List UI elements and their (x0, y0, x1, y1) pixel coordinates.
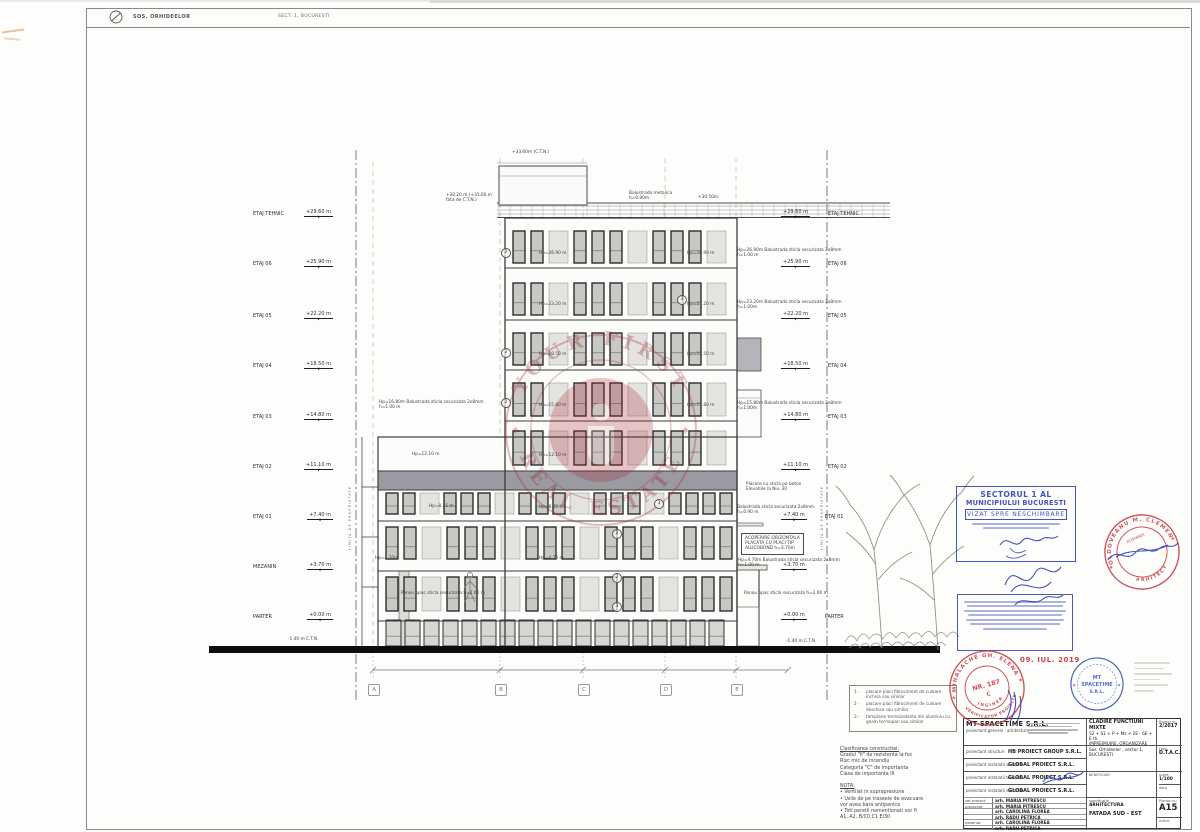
floor-label: ETAJ 05 (253, 313, 304, 319)
drawing-annotation: Hp=4.70m (375, 556, 398, 561)
project-subtitle: S2 + S1 + P + Mz + 2E - 6E + E th. (1089, 731, 1154, 741)
floor-level-right: +25.90 mETAJ 06 (781, 259, 901, 267)
consultant-row: proiectant instalatii sanitareGLOBAL PRO… (964, 758, 1086, 771)
floor-level-left: ETAJ 02+11.10 m (253, 462, 333, 470)
spec-value: ARHITECTURA (1089, 803, 1154, 808)
floor-label: ETAJ 03 (253, 414, 304, 420)
axis-bubble-C: C (578, 684, 590, 696)
drawing-annotation: -1.40 m C.T.N. (288, 637, 318, 642)
floor-level-left: MEZANIN+3.70 m (253, 562, 333, 570)
consultant-row: proiectant structuriHB PROIECT GROUP S.R… (964, 745, 1086, 758)
drawing-annotation: Hp=4.70 m (539, 556, 564, 561)
drawing-annotation: Hp=16.80m Balustrada sticla securizata 2… (379, 400, 484, 410)
axis-bubble-E: E (731, 684, 743, 696)
drawing-title: FATADA SUD - EST (1089, 811, 1154, 817)
drawing-annotation: Placare cu sticla pe beton Elevatiile la… (746, 482, 801, 492)
annotation-layer: ETAJ TEHNIC+29.60 mETAJ 06+25.90 mETAJ 0… (0, 0, 1200, 832)
drawing-annotation: Hp=23.20m Balustrada sticla securizata 2… (737, 300, 842, 310)
indice-label: indice (1159, 819, 1180, 823)
floor-elevation: +0.00 m (307, 612, 333, 620)
floor-elevation: +25.90 m (781, 259, 810, 267)
stamp-line: MUNICIPIULUI BUCURESTI (959, 499, 1073, 507)
data-label: data (1159, 784, 1180, 790)
drawing-annotation: Hp=8.45 m (429, 504, 454, 509)
floor-elevation: +22.20 m (781, 311, 810, 319)
drawing-annotation: Balustrada metalica h=0.90m (629, 191, 672, 201)
floor-label: ETAJ 01 (825, 514, 844, 520)
material-number-bubble: 2 (612, 529, 622, 539)
company-address-lines (1028, 721, 1082, 736)
project-title: CLADIRE FUNCTIUNI MIXTE (1089, 720, 1154, 731)
floor-level-left: ETAJ TEHNIC+29.60 m (253, 209, 333, 217)
drawing-annotation: Balustrada sticla securizata 2x8mm h=0.9… (737, 505, 814, 515)
drawing-annotation: Hp=23.20 m (539, 302, 566, 307)
floor-label: ETAJ 06 (828, 261, 847, 267)
consultant-row: proiectant instalatii electriceGLOBAL PR… (964, 784, 1086, 797)
floor-level-left: ETAJ 04+18.50 m (253, 361, 333, 369)
drawing-annotation: -1.40 m C.T.N. (786, 639, 816, 644)
floor-level-left: ETAJ 03+14.80 m (253, 412, 333, 420)
floor-level-left: ETAJ 06+25.90 m (253, 259, 333, 267)
floor-level-right: +0.00 mPARTER (781, 612, 901, 620)
material-number-bubble: 2 (501, 248, 511, 258)
drawing-annotation: Hp=12.10 m (412, 452, 439, 457)
legend-item: 2 -placare placi fibrociment de culoare … (854, 701, 952, 711)
note-line: A1, A2, B/C0,C1 EI30 (840, 815, 968, 821)
drawing-annotation: Hp=4.70m Balustrada sticla securizata 2x… (738, 558, 840, 568)
stamp-line: SECTORUL 1 AL (959, 490, 1073, 499)
floor-elevation: +14.80 m (304, 412, 333, 420)
axis-bubble-D: D (660, 684, 672, 696)
drawing-annotation: +33.60m (C.T.N.) (512, 150, 549, 155)
drawing-annotation: Panou opac sticla securizata h=2.00 m (401, 591, 485, 596)
scara-value: 1/100 (1159, 777, 1180, 782)
floor-elevation: +3.70 m (307, 562, 333, 570)
drawing-annotation: Hp=23.20 m (687, 302, 714, 307)
materials-legend: 1 -placare placi fibrociment de culoare … (849, 685, 957, 732)
floor-level-left: ETAJ 05+22.20 m (253, 311, 333, 319)
drawing-annotation: Panou opac sticla securizata h=2.00 m (744, 591, 828, 596)
floor-level-right: +18.50 mETAJ 04 (781, 361, 901, 369)
floor-label: ETAJ 03 (828, 414, 847, 420)
floor-label: PARTER (825, 614, 844, 620)
floor-elevation: +11.10 m (781, 462, 810, 470)
legend-item: 3 -tamplarie termoizolanta din aluminiu … (854, 714, 952, 724)
floor-level-right: +14.80 mETAJ 03 (781, 412, 901, 420)
drawing-annotation: Hp=19.50 m (687, 352, 714, 357)
axis-bubble-B: B (495, 684, 507, 696)
floor-elevation: +7.40 m (307, 512, 333, 520)
embossed-seal (1132, 658, 1178, 712)
floor-label: ETAJ 05 (828, 313, 847, 319)
drawing-annotation: +30.20 m (+31.60 m fata de C.T.N.) (446, 193, 492, 203)
floor-level-left: PARTER+0.00 m (253, 612, 333, 620)
floor-elevation: +11.10 m (304, 462, 333, 470)
project-address2: BUCURESTI (1089, 752, 1154, 757)
floor-elevation: +29.60 m (781, 209, 810, 217)
floor-level-left: ETAJ 01+7.40 m (253, 512, 333, 520)
beneficiar-label: BENEFICIAR (1089, 773, 1154, 777)
material-number-bubble: 2 (501, 398, 511, 408)
plansa-value: A15 (1159, 803, 1180, 813)
floor-elevation: +25.90 m (304, 259, 333, 267)
drawing-annotation: Hp=12.10 m (539, 453, 566, 458)
floor-label: ETAJ TEHNIC (253, 211, 304, 217)
floor-elevation: +14.80 m (781, 412, 810, 420)
legal-text-stamp (957, 594, 1073, 651)
floor-label: ETAJ TEHNIC (828, 211, 859, 217)
drawing-annotation: Hp=15.80m Balustrada sticla securizata 2… (737, 401, 842, 411)
material-number-bubble: 2 (501, 348, 511, 358)
material-number-bubble: 3 (654, 499, 664, 509)
drawing-annotation: ACOPERIRE ORIZONTALA PLACATA CU PLACI TI… (741, 533, 804, 555)
floor-elevation: +22.20 m (304, 311, 333, 319)
property-line-label-right: LIMITA DE PROPRIETATE (820, 420, 824, 550)
date-stamp: 09. IUL. 2019 (1020, 656, 1080, 664)
crew-name: arh. RADU PETRICA (992, 825, 1086, 831)
floor-label: ETAJ 02 (828, 464, 847, 470)
floor-label: ETAJ 06 (253, 261, 304, 267)
floor-label: ETAJ 04 (253, 363, 304, 369)
floor-elevation: +29.60 m (304, 209, 333, 217)
drawing-annotation: Hp=15.80 m (539, 403, 566, 408)
drawing-annotation: Hp=15.80 m (687, 403, 714, 408)
drawing-annotation: Hp=26.90 m (539, 251, 566, 256)
floor-level-right: +29.60 mETAJ TEHNIC (781, 209, 901, 217)
floor-elevation: +18.50 m (304, 361, 333, 369)
floor-label: PARTER (253, 614, 307, 620)
property-line-label-left: LIMITA DE PROPRIETATE (348, 420, 352, 550)
floor-label: ETAJ 04 (828, 363, 847, 369)
floor-level-right: +22.20 mETAJ 05 (781, 311, 901, 319)
floor-label: MEZANIN (253, 564, 307, 570)
title-block: MT SPACETIME S.R.L. proiectant general -… (963, 718, 1181, 829)
axis-bubble-A: A (368, 684, 380, 696)
material-number-bubble: 3 (677, 295, 687, 305)
crew-role (964, 825, 992, 831)
floor-elevation: +0.00 m (781, 612, 807, 620)
drawing-annotation: Hp=8.45 m (539, 505, 564, 510)
drawing-sheet: SOS. ORHIDEELOR SECT. 1, BUCURESTI (0, 0, 1200, 832)
consultant-row: proiectant instalatii termiceGLOBAL PROI… (964, 771, 1086, 784)
floor-level-right: +11.10 mETAJ 02 (781, 462, 901, 470)
drawing-annotation: Hp=26.90m Balustrada sticla securizata 2… (737, 248, 842, 258)
floor-elevation: +18.50 m (781, 361, 810, 369)
material-number-bubble: 2 (612, 573, 622, 583)
drawing-annotation: Hp=26.90 m (687, 251, 714, 256)
material-number-bubble: 3 (612, 602, 622, 612)
floor-label: ETAJ 02 (253, 464, 304, 470)
drawing-annotation: Hp=19.50 m (539, 352, 566, 357)
faza-value: D.T.A.C. (1159, 751, 1180, 756)
legend-item: 1 -placare placi fibrociment de culoare … (854, 689, 952, 699)
classification-notes: Clasificarea constructiei:Gradul "II" de… (840, 747, 968, 821)
sector1-approval-stamp: SECTORUL 1 AL MUNICIPIULUI BUCURESTI VIZ… (956, 486, 1076, 562)
stamp-line: VIZAT SPRE NESCHIMBARE (965, 509, 1067, 520)
drawing-annotation: +30.50m (698, 195, 718, 200)
proiect-value: 2/2017 (1159, 724, 1180, 729)
floor-label: ETAJ 01 (253, 514, 307, 520)
